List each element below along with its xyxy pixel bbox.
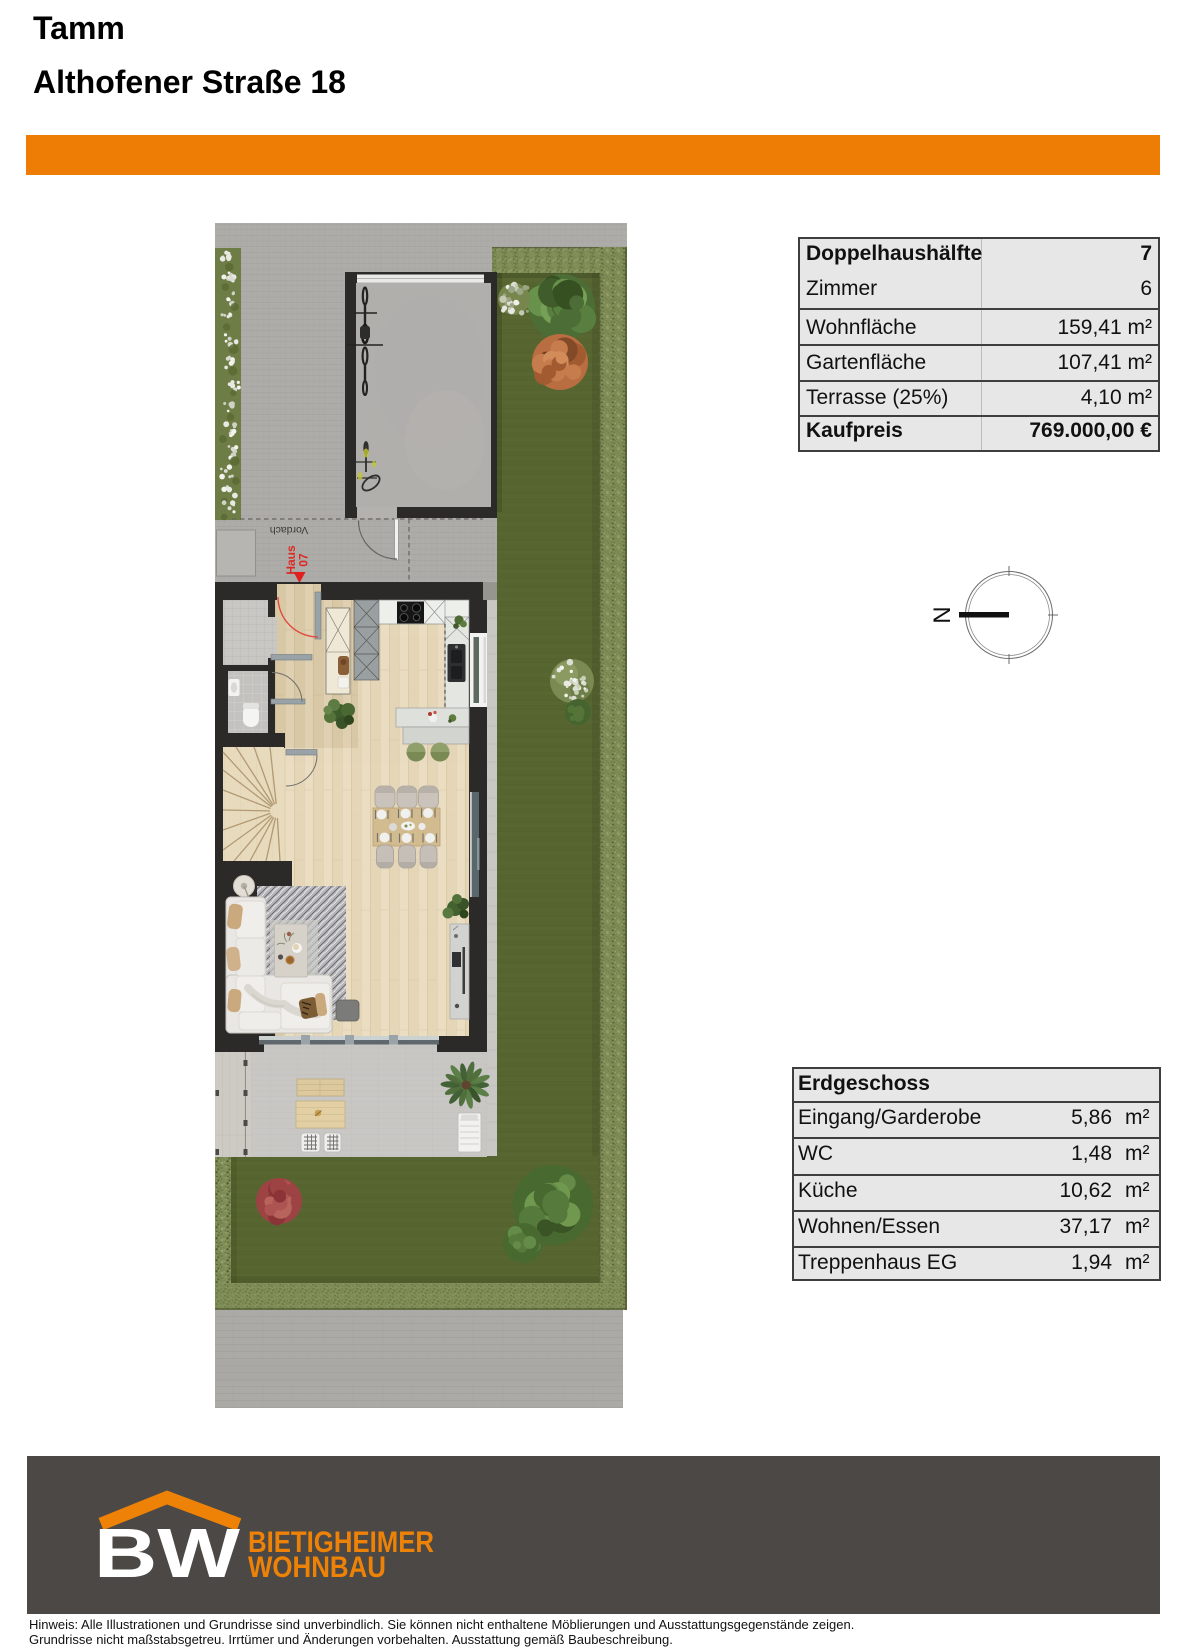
svg-text:BW: BW bbox=[94, 1514, 240, 1592]
svg-text:WOHNBAU: WOHNBAU bbox=[248, 1551, 386, 1584]
svg-text:Vordach: Vordach bbox=[270, 524, 309, 536]
svg-text:N: N bbox=[928, 606, 955, 623]
svg-text:07: 07 bbox=[297, 553, 311, 567]
